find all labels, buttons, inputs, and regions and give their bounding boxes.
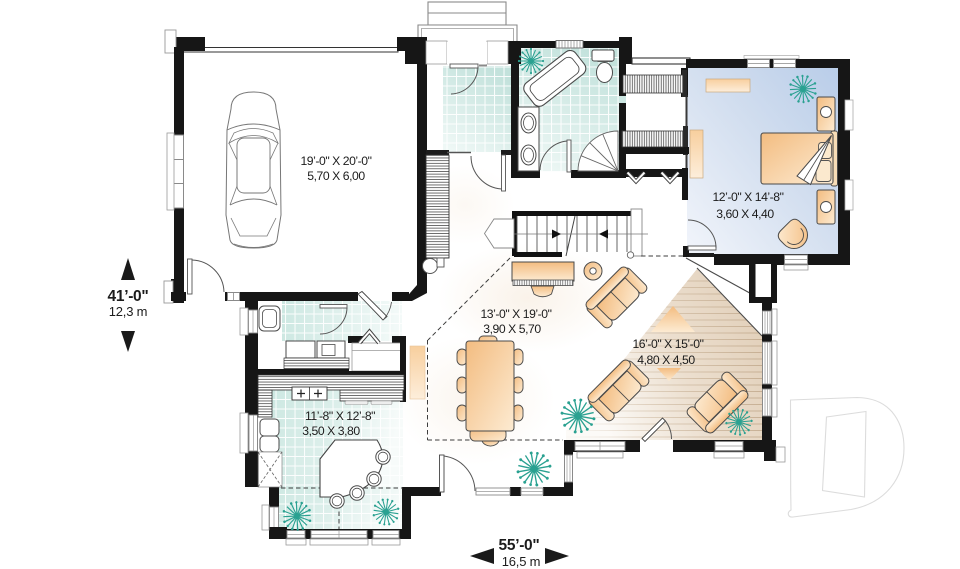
svg-text:12,3 m: 12,3 m xyxy=(109,304,148,319)
svg-text:19’-0" X 20’-0": 19’-0" X 20’-0" xyxy=(300,154,371,168)
svg-text:13’-0" X 19’-0": 13’-0" X 19’-0" xyxy=(480,307,551,321)
svg-text:11’-8" X 12’-8": 11’-8" X 12’-8" xyxy=(305,409,375,423)
svg-text:3,90 X 5,70: 3,90 X 5,70 xyxy=(483,322,541,336)
svg-text:4,80 X 4,50: 4,80 X 4,50 xyxy=(637,353,695,367)
svg-text:16,5 m: 16,5 m xyxy=(502,554,541,569)
svg-text:3,50 X 3,80: 3,50 X 3,80 xyxy=(302,424,360,438)
svg-text:3,60 X 4,40: 3,60 X 4,40 xyxy=(716,207,774,221)
svg-text:5,70 X 6,00: 5,70 X 6,00 xyxy=(307,169,365,183)
svg-text:16’-0" X 15’-0": 16’-0" X 15’-0" xyxy=(632,337,703,351)
svg-text:55’-0": 55’-0" xyxy=(499,537,540,554)
svg-text:12’-0" X 14’-8": 12’-0" X 14’-8" xyxy=(712,190,783,204)
svg-text:41’-0": 41’-0" xyxy=(108,288,149,305)
